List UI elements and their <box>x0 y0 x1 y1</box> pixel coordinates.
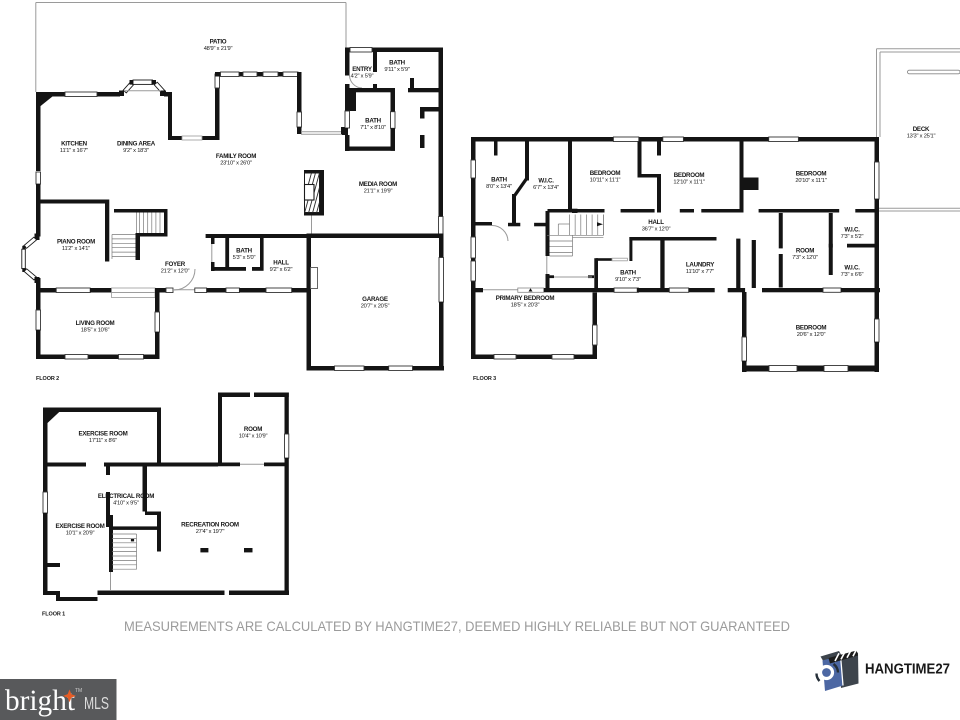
svg-text:20'7" x 20'5": 20'7" x 20'5" <box>361 304 390 310</box>
svg-text:23'10" x 26'0": 23'10" x 26'0" <box>220 161 252 167</box>
svg-text:BATH: BATH <box>620 270 637 277</box>
svg-text:BEDROOM: BEDROOM <box>674 172 705 179</box>
svg-text:ENTRY: ENTRY <box>352 66 373 73</box>
svg-text:11'10" x 7'7": 11'10" x 7'7" <box>686 269 714 275</box>
svg-text:bright: bright <box>5 684 76 717</box>
svg-text:9'10" x 7'3": 9'10" x 7'3" <box>615 277 641 283</box>
svg-text:BATH: BATH <box>389 60 406 67</box>
svg-text:BATH: BATH <box>236 248 253 255</box>
svg-text:9'2" x 18'3": 9'2" x 18'3" <box>123 148 149 154</box>
svg-text:ROOM: ROOM <box>244 426 262 433</box>
svg-text:7'3" x 6'6": 7'3" x 6'6" <box>841 272 864 278</box>
svg-text:BEDROOM: BEDROOM <box>796 325 827 332</box>
svg-text:27'4" x 19'7": 27'4" x 19'7" <box>196 529 225 535</box>
svg-text:12'10" x 11'1": 12'10" x 11'1" <box>673 180 704 186</box>
svg-text:7'3" x 12'0": 7'3" x 12'0" <box>792 255 818 261</box>
svg-text:FLOOR 2: FLOOR 2 <box>36 376 59 382</box>
svg-text:TM: TM <box>75 688 82 694</box>
svg-text:W.I.C.: W.I.C. <box>844 265 860 272</box>
svg-text:9'11" x 5'9": 9'11" x 5'9" <box>384 67 409 73</box>
svg-text:ROOM: ROOM <box>796 248 814 255</box>
svg-text:GARAGE: GARAGE <box>362 296 388 303</box>
svg-text:10'4" x 10'9": 10'4" x 10'9" <box>239 434 268 440</box>
svg-text:11'2" x 14'1": 11'2" x 14'1" <box>62 246 90 252</box>
svg-text:FAMILY ROOM: FAMILY ROOM <box>216 153 256 160</box>
svg-text:4'2" x 5'9": 4'2" x 5'9" <box>351 74 374 80</box>
svg-text:MLS: MLS <box>84 693 109 713</box>
svg-text:18'5" x 10'6": 18'5" x 10'6" <box>81 328 110 334</box>
svg-text:FLOOR 1: FLOOR 1 <box>42 612 65 618</box>
svg-text:PIANO ROOM: PIANO ROOM <box>57 239 95 246</box>
svg-text:MEASUREMENTS ARE CALCULATED BY: MEASUREMENTS ARE CALCULATED BY HANGTIME2… <box>124 619 790 634</box>
svg-text:PATIO: PATIO <box>210 39 227 46</box>
svg-text:BEDROOM: BEDROOM <box>590 170 621 177</box>
svg-text:48'9" x 21'9": 48'9" x 21'9" <box>204 46 233 52</box>
svg-text:17'11" x 8'6": 17'11" x 8'6" <box>89 438 117 444</box>
svg-text:ELECTRICAL ROOM: ELECTRICAL ROOM <box>98 493 154 500</box>
svg-text:EXERCISE ROOM: EXERCISE ROOM <box>55 523 104 530</box>
svg-text:13'3" x 25'1": 13'3" x 25'1" <box>907 134 936 140</box>
svg-text:FOYER: FOYER <box>165 261 186 268</box>
svg-text:6'7" x 13'4": 6'7" x 13'4" <box>533 185 559 191</box>
svg-text:7'1" x 8'10": 7'1" x 8'10" <box>360 125 386 131</box>
svg-text:18'5" x 20'3": 18'5" x 20'3" <box>511 303 540 309</box>
svg-text:FLOOR 3: FLOOR 3 <box>473 376 496 382</box>
svg-text:W.I.C.: W.I.C. <box>844 227 860 234</box>
svg-text:4'10" x 9'5": 4'10" x 9'5" <box>113 501 139 507</box>
svg-text:MEDIA ROOM: MEDIA ROOM <box>359 181 397 188</box>
svg-text:KITCHEN: KITCHEN <box>61 141 88 148</box>
svg-text:10'11" x 11'1": 10'11" x 11'1" <box>590 178 621 184</box>
svg-text:20'6" x 12'0": 20'6" x 12'0" <box>797 332 826 338</box>
svg-text:LAUNDRY: LAUNDRY <box>686 262 715 269</box>
svg-text:10'1" x 20'9": 10'1" x 20'9" <box>66 531 95 537</box>
svg-text:W.I.C.: W.I.C. <box>538 178 554 185</box>
svg-text:DINING AREA: DINING AREA <box>117 141 156 148</box>
svg-text:HALL: HALL <box>648 219 664 226</box>
svg-text:EXERCISE ROOM: EXERCISE ROOM <box>78 431 127 438</box>
svg-text:LIVING ROOM: LIVING ROOM <box>76 320 115 327</box>
svg-text:9'2" x 6'2": 9'2" x 6'2" <box>270 267 293 273</box>
svg-text:21'1" x 19'9": 21'1" x 19'9" <box>364 189 393 195</box>
svg-text:PRIMARY BEDROOM: PRIMARY BEDROOM <box>496 295 555 302</box>
svg-text:BATH: BATH <box>365 118 382 125</box>
svg-text:5'3" x 5'0": 5'3" x 5'0" <box>233 255 256 261</box>
svg-text:HANGTIME27: HANGTIME27 <box>865 662 950 678</box>
svg-text:HALL: HALL <box>273 260 289 267</box>
svg-text:21'2" x 12'0": 21'2" x 12'0" <box>161 269 190 275</box>
svg-text:8'0" x 13'4": 8'0" x 13'4" <box>486 184 512 190</box>
svg-text:DECK: DECK <box>913 126 930 133</box>
svg-text:BEDROOM: BEDROOM <box>796 171 827 178</box>
svg-text:7'3" x 5'2": 7'3" x 5'2" <box>841 234 864 240</box>
svg-text:RECREATION ROOM: RECREATION ROOM <box>181 522 239 529</box>
svg-text:20'10" x 11'1": 20'10" x 11'1" <box>795 178 826 184</box>
svg-text:BATH: BATH <box>491 177 508 184</box>
svg-text:11'1" x 16'7": 11'1" x 16'7" <box>60 148 88 154</box>
svg-text:36'7" x 12'0": 36'7" x 12'0" <box>642 227 671 233</box>
